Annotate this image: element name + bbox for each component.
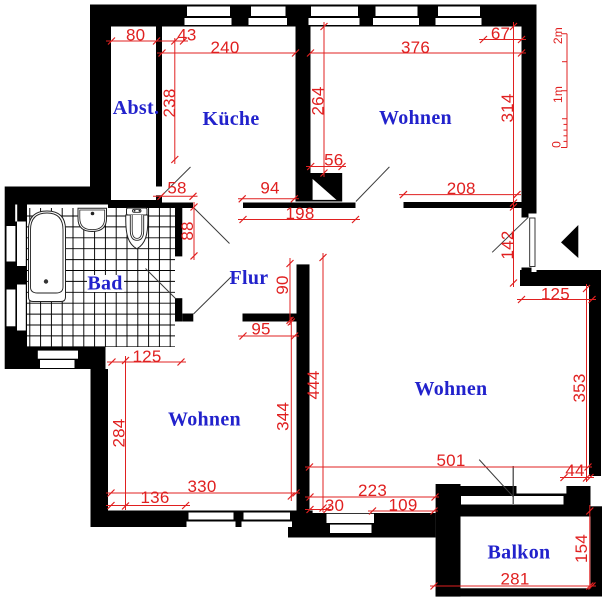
svg-text:444: 444 <box>304 371 323 400</box>
svg-text:208: 208 <box>447 179 476 198</box>
svg-text:0: 0 <box>550 141 564 148</box>
svg-text:Flur: Flur <box>230 267 269 289</box>
svg-text:90: 90 <box>273 275 292 294</box>
svg-text:80: 80 <box>126 25 145 44</box>
svg-text:56: 56 <box>324 151 343 170</box>
svg-text:125: 125 <box>133 347 162 366</box>
svg-text:43: 43 <box>177 25 196 44</box>
svg-text:238: 238 <box>160 89 179 118</box>
svg-text:264: 264 <box>309 87 328 116</box>
svg-text:136: 136 <box>141 488 170 507</box>
svg-text:109: 109 <box>389 496 418 515</box>
svg-text:2m: 2m <box>551 27 565 44</box>
svg-text:1m: 1m <box>551 86 565 103</box>
svg-text:95: 95 <box>251 320 270 339</box>
svg-text:Wohnen: Wohnen <box>415 378 488 400</box>
svg-text:Küche: Küche <box>202 108 259 130</box>
svg-text:501: 501 <box>437 451 466 470</box>
svg-text:Abst.: Abst. <box>113 97 160 119</box>
svg-text:44: 44 <box>565 461 584 480</box>
svg-text:198: 198 <box>286 204 315 223</box>
svg-text:Wohnen: Wohnen <box>379 107 452 129</box>
svg-text:Balkon: Balkon <box>488 542 551 564</box>
svg-text:88: 88 <box>178 221 197 240</box>
svg-text:154: 154 <box>572 534 591 563</box>
svg-text:67: 67 <box>491 24 510 43</box>
svg-text:142: 142 <box>498 231 517 260</box>
svg-text:284: 284 <box>110 419 129 448</box>
svg-text:223: 223 <box>358 481 387 500</box>
svg-text:314: 314 <box>498 94 517 123</box>
svg-text:30: 30 <box>325 496 344 515</box>
svg-text:353: 353 <box>570 374 589 403</box>
svg-text:Wohnen: Wohnen <box>168 409 241 431</box>
svg-text:281: 281 <box>501 570 530 589</box>
svg-text:376: 376 <box>401 38 430 57</box>
svg-text:330: 330 <box>188 477 217 496</box>
svg-text:240: 240 <box>211 38 240 57</box>
svg-text:125: 125 <box>541 284 570 303</box>
svg-text:Bad: Bad <box>87 273 122 295</box>
svg-text:58: 58 <box>167 178 186 197</box>
svg-text:94: 94 <box>260 178 279 197</box>
svg-text:344: 344 <box>273 402 292 431</box>
